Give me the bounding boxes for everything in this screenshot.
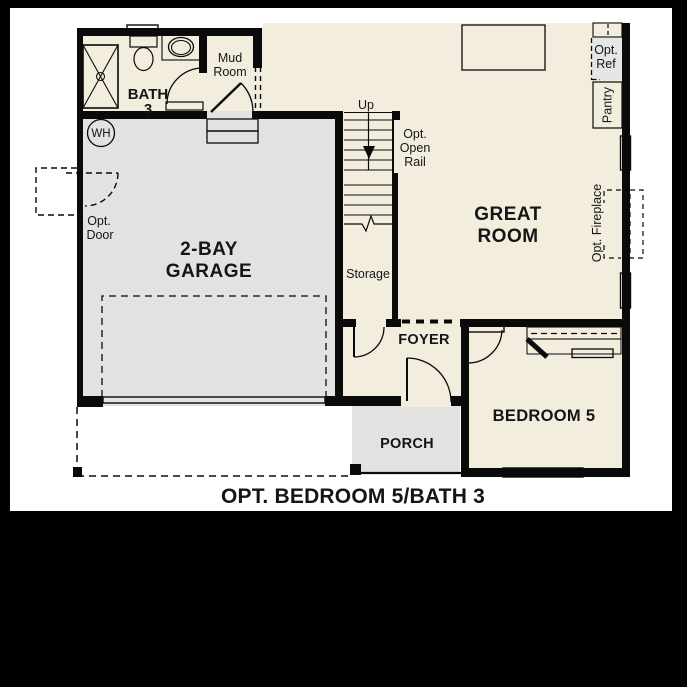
exterior-wall-right	[622, 23, 630, 477]
front-door-opening	[401, 395, 451, 407]
mudroom-label-line2: Room	[213, 65, 246, 79]
driveway-corner-post	[73, 467, 82, 477]
porch-post	[350, 464, 361, 475]
storage-label: Storage	[346, 267, 390, 281]
mudroom-right-wall	[253, 28, 262, 68]
pantry-label: Pantry	[601, 86, 615, 123]
opt-ref-label-line2: Ref	[596, 57, 616, 71]
storage-door-opening	[356, 318, 386, 328]
mudroom-label-line1: Mud	[218, 51, 242, 65]
porch-label: PORCH	[380, 436, 434, 452]
exterior-wall-left	[77, 28, 83, 406]
bedroom5-label: BEDROOM 5	[493, 407, 596, 425]
floor-plan-image: BATH 3 Mud Room WH Opt. Door 2-BAY GARAG…	[0, 0, 687, 687]
bath3-label-line2: 3	[144, 101, 152, 118]
garage-top-wall-right	[252, 111, 343, 119]
south-wall-garage-right	[325, 396, 352, 406]
opt-door-label-line2: Door	[86, 228, 113, 242]
bedroom5-left-wall	[461, 319, 469, 477]
great-room-label-line2: ROOM	[477, 226, 538, 247]
opt-open-rail-line3: Rail	[404, 155, 426, 169]
stairs-up-label: Up	[358, 98, 374, 112]
great-room-label-line1: GREAT	[474, 204, 542, 225]
garage-label-line1: 2-BAY	[180, 239, 238, 260]
garage-label-line2: GARAGE	[166, 261, 252, 282]
garage-right-wall	[335, 111, 343, 406]
plan-caption: OPT. BEDROOM 5/BATH 3	[221, 485, 485, 508]
opt-open-rail-line2: Open	[400, 141, 431, 155]
floor-plan-svg: BATH 3 Mud Room WH Opt. Door 2-BAY GARAG…	[0, 0, 687, 687]
opt-open-rail-line1: Opt.	[403, 127, 427, 141]
opt-fireplace-label: Opt. Fireplace	[590, 184, 604, 263]
foyer-label: FOYER	[398, 332, 450, 348]
south-wall-garage-left	[77, 396, 103, 407]
water-heater-label: WH	[91, 128, 110, 140]
garage-top-wall-left	[77, 111, 207, 119]
great-room-south-wall	[343, 319, 630, 327]
opt-door-label-line1: Opt.	[87, 214, 111, 228]
stair-right-wall	[392, 173, 398, 327]
opt-ref-label-line1: Opt.	[594, 43, 618, 57]
